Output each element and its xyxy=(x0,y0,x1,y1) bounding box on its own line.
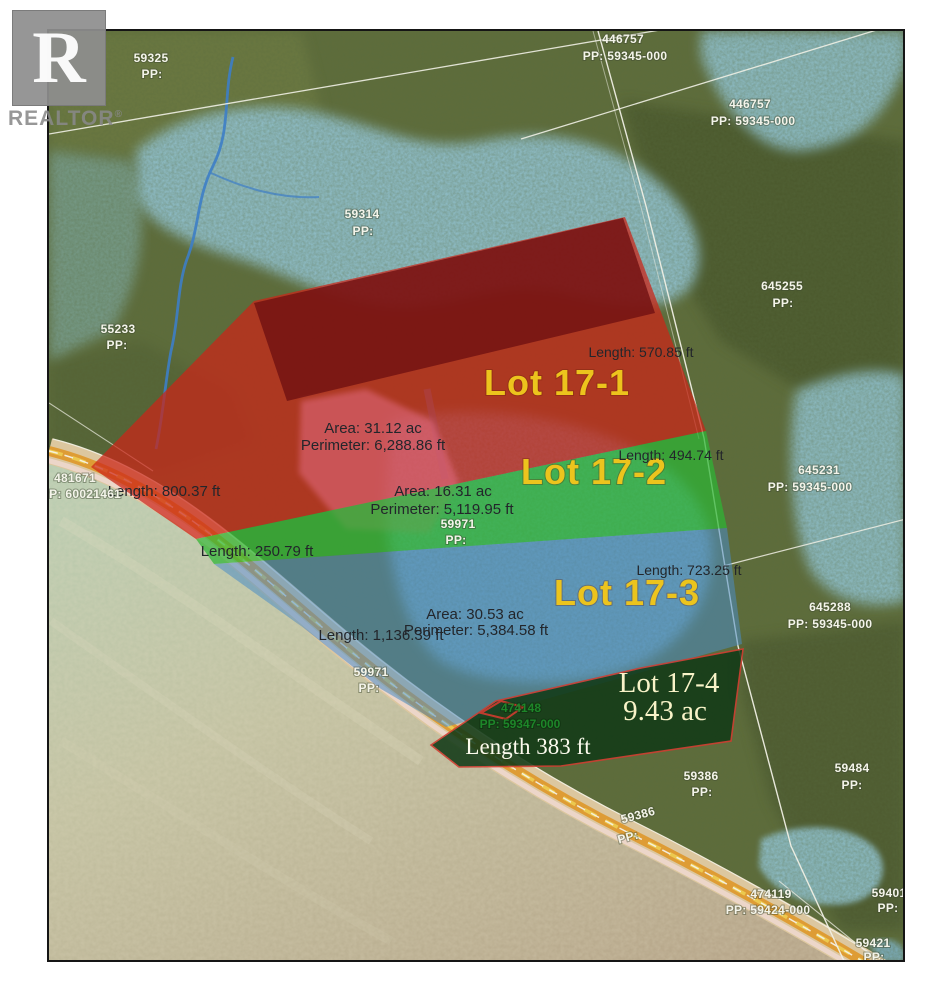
parcel-id: 59401 xyxy=(872,886,903,900)
lot-17-2-perimeter: Perimeter: 5,119.95 ft xyxy=(370,501,514,518)
map-frame: Lot 17-1 Area: 31.12 ac Perimeter: 6,288… xyxy=(47,29,905,962)
parcel-pp: PP: xyxy=(142,67,163,81)
lot-17-4-length: Length 383 ft xyxy=(465,734,591,759)
realtor-wordmark: REALTOR® xyxy=(8,107,123,131)
lot-17-2-length-sw: Length: 250.79 ft xyxy=(201,543,314,560)
realtor-logo: R REALTOR® xyxy=(8,6,128,136)
parcel-id: 474119 xyxy=(750,887,791,901)
parcel-pp: PP: 59345-000 xyxy=(583,49,668,63)
parcel-pp: PP: 59345-000 xyxy=(788,617,873,631)
parcel-pp: PP: xyxy=(359,681,380,695)
lot-17-1-label: Lot 17-1 xyxy=(484,362,630,403)
lot-17-2-area: Area: 16.31 ac xyxy=(394,483,492,500)
lot-17-1-length-sw: Length: 800.37 ft xyxy=(108,483,221,500)
lot-17-4-area: 9.43 ac xyxy=(623,695,707,727)
parcel-id: 59386 xyxy=(684,769,719,783)
parcel-id: 59971 xyxy=(354,665,389,679)
parcel-id: 645288 xyxy=(809,600,851,614)
parcel-id: 446757 xyxy=(729,97,771,111)
parcel-id: 59421 xyxy=(856,936,891,950)
parcel-pp: PP: xyxy=(353,224,374,238)
aerial-map: Lot 17-1 Area: 31.12 ac Perimeter: 6,288… xyxy=(49,31,903,960)
parcel-pp: PP: 59345-000 xyxy=(711,114,796,128)
lot-17-2-length-ne: Length: 494.74 ft xyxy=(618,447,723,463)
realtor-logo-box: R xyxy=(12,10,106,106)
parcel-id: 645231 xyxy=(798,463,840,477)
parcel-pp: PP: xyxy=(773,296,794,310)
parcel-id: 59484 xyxy=(835,761,870,775)
parcel-id: 481671 xyxy=(54,471,96,485)
realtor-wordmark-text: REALTOR xyxy=(8,107,115,130)
parcel-pp: PP: xyxy=(864,950,885,960)
parcel-id: 59971 xyxy=(441,517,476,531)
parcel-pp: PP: xyxy=(446,533,467,547)
parcel-pp-green: PP: 59347-000 xyxy=(480,717,561,731)
lot-17-1-area: Area: 31.12 ac xyxy=(324,420,422,437)
parcel-pp: PP: 59345-000 xyxy=(768,480,853,494)
lot-17-3-label: Lot 17-3 xyxy=(554,572,700,613)
parcel-pp: PP: xyxy=(107,338,128,352)
lot-17-1-length-ne: Length: 570.85 ft xyxy=(588,344,693,360)
parcel-id: 59314 xyxy=(345,207,380,221)
realtor-r-glyph: R xyxy=(32,21,85,95)
scanned-lot-map-page: Lot 17-1 Area: 31.12 ac Perimeter: 6,288… xyxy=(0,0,951,995)
parcel-id-green: 474148 xyxy=(501,701,541,715)
parcel-id: 59325 xyxy=(134,51,169,65)
lot-17-3-length-sw: Length: 1,136.39 ft xyxy=(318,627,444,644)
lot-17-1-perimeter: Perimeter: 6,288.86 ft xyxy=(301,437,446,454)
parcel-id: 55233 xyxy=(101,322,136,336)
parcel-id: 446757 xyxy=(602,32,644,46)
parcel-pp: PP: 59424-000 xyxy=(726,903,811,917)
lot-17-3-length-ne: Length: 723.25 ft xyxy=(636,562,741,578)
parcel-pp: PP: xyxy=(878,901,899,915)
parcel-pp: PP: 60021461 xyxy=(49,487,121,501)
parcel-id: 645255 xyxy=(761,279,803,293)
registered-mark: ® xyxy=(115,109,123,120)
parcel-pp: PP: xyxy=(842,778,863,792)
lot-17-3-area: Area: 30.53 ac xyxy=(426,606,524,623)
parcel-pp: PP: xyxy=(692,785,713,799)
